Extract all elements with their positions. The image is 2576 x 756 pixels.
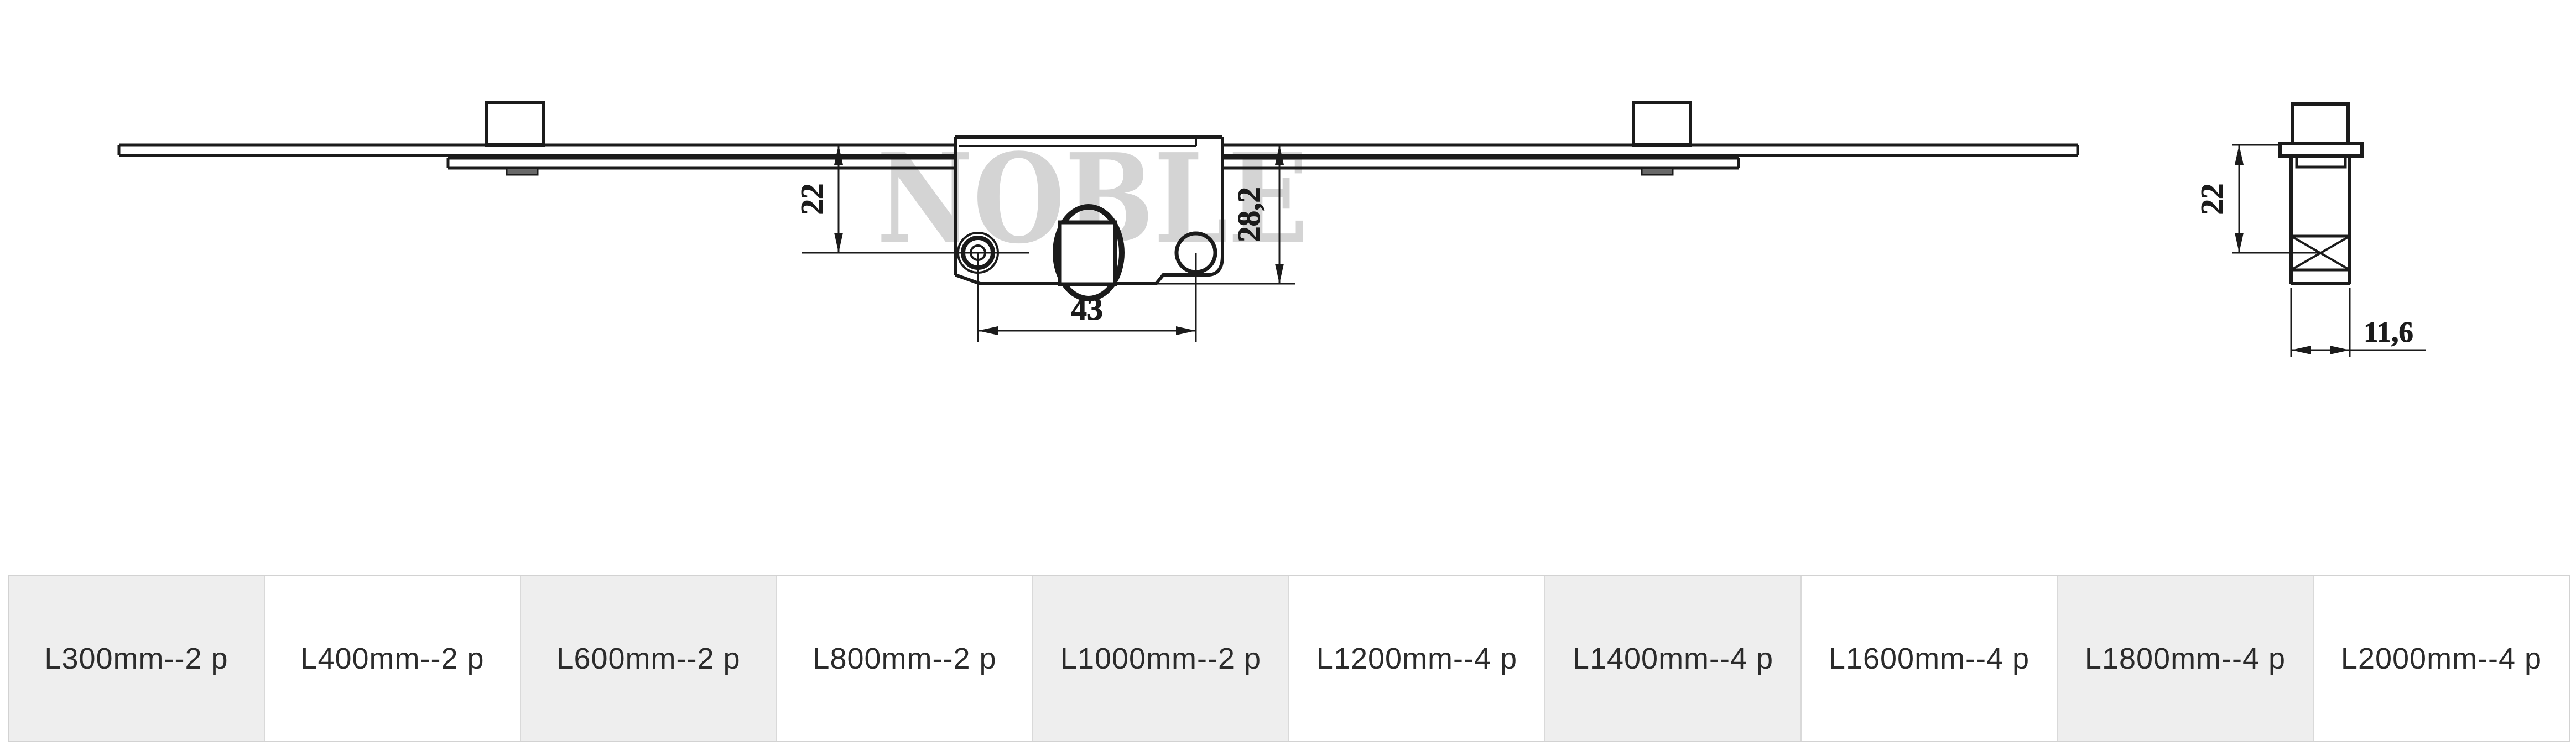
size-option-label: L600mm--2 p [556,642,740,676]
size-option-cell: L1600mm--4 p [1800,576,2057,741]
size-options-table: L300mm--2 p L400mm--2 p L600mm--2 p L800… [8,575,2570,742]
size-option-label: L1000mm--2 p [1060,642,1261,676]
cam-block-left [487,102,543,145]
size-option-cell: L1800mm--4 p [2057,576,2313,741]
size-option-cell: L800mm--2 p [776,576,1032,741]
dimension-label-hole-spacing: 43 [1071,291,1103,327]
size-option-label: L1200mm--4 p [1316,642,1517,676]
size-option-label: L1400mm--4 p [1573,642,1773,676]
size-option-cell: L600mm--2 p [520,576,776,741]
size-option-cell: L1000mm--2 p [1032,576,1288,741]
side-faceplate-flange [2280,144,2362,156]
size-option-label: L300mm--2 p [44,642,228,676]
size-option-label: L1800mm--4 p [2085,642,2286,676]
dimension-label-backset-side: 22 [2195,184,2230,215]
side-view: 11,6 22 [2195,104,2426,357]
size-option-cell: L300mm--2 p [9,576,264,741]
size-option-cell: L1400mm--4 p [1544,576,1800,741]
size-option-cell: L400mm--2 p [264,576,520,741]
spindle-square [1055,207,1122,299]
size-option-label: L400mm--2 p [300,642,484,676]
size-option-cell: L2000mm--4 p [2313,576,2569,741]
dimension-label-body-height: 28,2 [1232,187,1267,242]
size-option-label: L800mm--2 p [813,642,996,676]
rivet-tab-right [1642,168,1673,175]
cam-block-right [1633,102,1690,145]
product-drawing-page: { "watermark": "NOBLE", "colors": { "lin… [0,0,2576,753]
size-option-label: L1600mm--4 p [1829,642,2029,676]
size-option-label: L2000mm--4 p [2341,642,2542,676]
dimension-label-body-width: 11,6 [2364,316,2413,348]
size-option-cell: L1200mm--4 p [1288,576,1544,741]
side-cam-stub [2293,104,2348,144]
dimension-label-backset-front: 22 [795,184,830,215]
front-view: 43 28,2 22 [119,102,2078,342]
rivet-tab-left [507,168,538,175]
